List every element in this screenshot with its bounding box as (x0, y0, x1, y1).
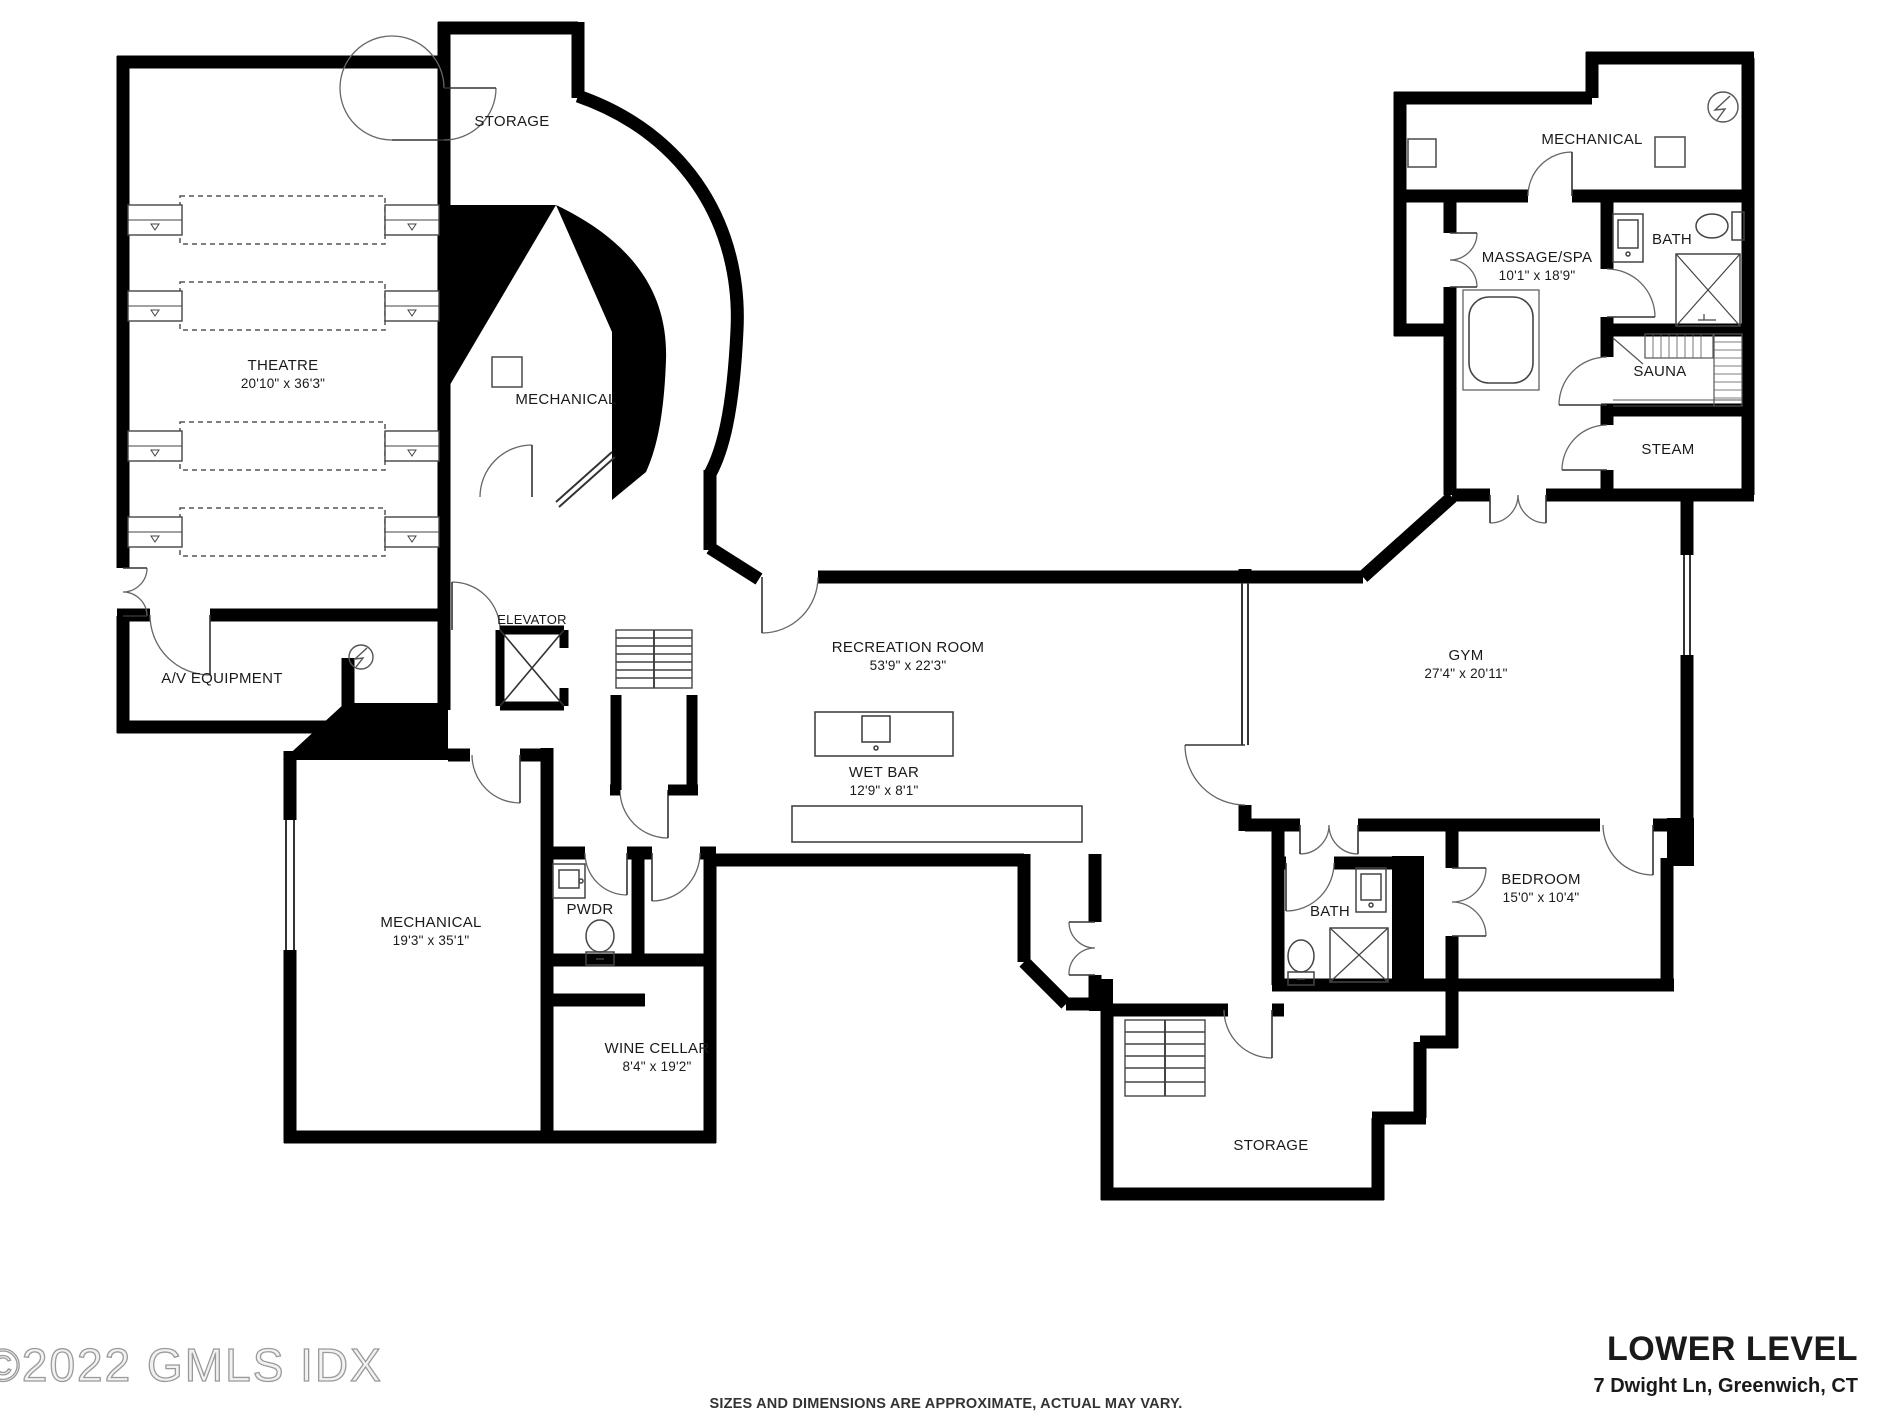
room-label-mechanical-center: MECHANICAL (515, 391, 616, 409)
page-address: 7 Dwight Ln, Greenwich, CT (1594, 1375, 1858, 1398)
room-label-steam: STEAM (1641, 441, 1694, 459)
pwdr-sink-icon (553, 864, 585, 898)
room-label-recreation-room: RECREATION ROOM 53'9" x 22'3" (832, 639, 985, 675)
disclaimer-text: SIZES AND DIMENSIONS ARE APPROXIMATE, AC… (710, 1396, 1183, 1412)
room-label-wine-cellar: WINE CELLAR 8'4" x 19'2" (605, 1040, 710, 1076)
watermark: ©2022 GMLS IDX (0, 1338, 383, 1392)
room-label-pwdr: PWDR (566, 901, 613, 919)
room-label-mechanical-lower: MECHANICAL 19'3" x 35'1" (380, 914, 481, 950)
room-label-sauna: SAUNA (1633, 363, 1686, 381)
walls (117, 22, 1754, 1200)
wet-bar-island (792, 712, 1082, 842)
page-title: LOWER LEVEL (1594, 1330, 1858, 1369)
floor-plan-svg (0, 0, 1890, 1422)
massage-table-icon (1463, 290, 1539, 390)
room-label-elevator: ELEVATOR (497, 611, 567, 629)
room-label-storage-top: STORAGE (474, 113, 549, 131)
room-label-storage-bottom: STORAGE (1233, 1137, 1308, 1155)
bath-upper-fixtures (1613, 212, 1744, 326)
room-label-gym: GYM 27'4" x 20'11" (1424, 647, 1507, 683)
room-label-bath-lower: BATH (1310, 903, 1350, 921)
stair-closet (610, 695, 698, 790)
door-arcs (123, 36, 1655, 1058)
room-label-massage-spa: MASSAGE/SPA 10'1" x 18'9" (1482, 249, 1593, 285)
room-label-theatre: THEATRE 20'10" x 36'3" (241, 357, 325, 393)
room-label-bath-upper: BATH (1652, 231, 1692, 249)
room-label-wet-bar: WET BAR 12'9" x 8'1" (849, 764, 919, 800)
bath-lower-fixtures (1288, 868, 1388, 985)
elevator-icon (500, 630, 564, 706)
room-label-bedroom: BEDROOM 15'0" x 10'4" (1501, 871, 1581, 907)
basement-stairs-icon (1125, 1020, 1205, 1096)
room-label-mechanical-upper: MECHANICAL (1541, 131, 1642, 149)
floor-plan: THEATRE 20'10" x 36'3" STORAGE MECHANICA… (0, 0, 1890, 1422)
stairs-icon (616, 630, 692, 688)
title-block: LOWER LEVEL 7 Dwight Ln, Greenwich, CT (1594, 1330, 1858, 1398)
room-label-av-equipment: A/V EQUIPMENT (161, 670, 282, 688)
